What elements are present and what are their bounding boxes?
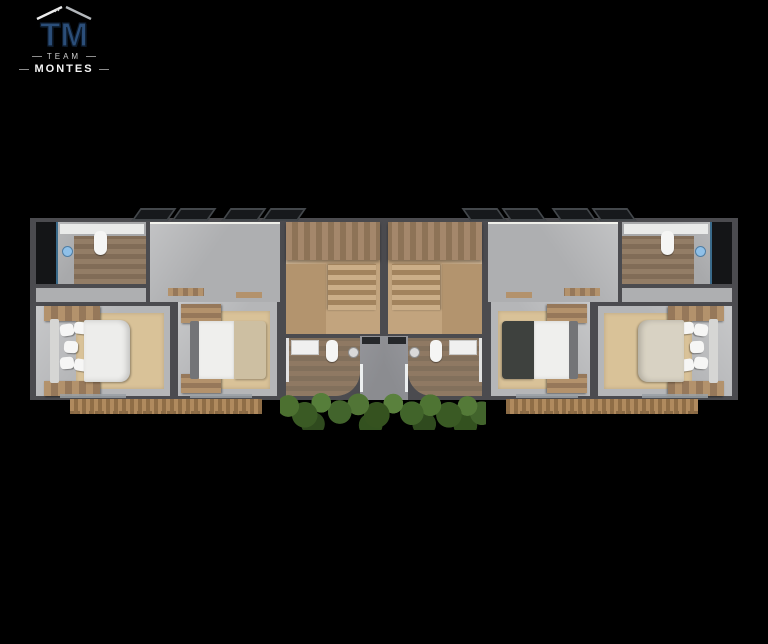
skylight-window [501,208,546,221]
wood-panel-wall [286,222,380,260]
headboard [190,321,199,379]
wood-console [506,292,532,298]
duvet [84,320,130,382]
skylight-window [171,208,216,221]
pillow [693,323,709,337]
ceiling-light-strip [150,222,280,224]
shower-enclosure [36,222,58,284]
throw-blanket [502,321,534,379]
headboard [569,321,578,379]
bed-sheet [531,321,569,379]
wood-console [236,292,262,298]
door-frame [360,364,363,392]
wood-deck [506,399,698,414]
bathroom-tile-floor [74,236,146,284]
sink-icon [291,340,319,355]
wood-deck [70,399,262,414]
logo-name-row: MONTES [8,63,120,75]
skylight-window [221,208,266,221]
dash-left [32,56,42,57]
bathroom-center [408,338,482,396]
shower-head-icon [695,246,706,257]
sliding-glass-door [190,394,252,398]
bathroom-wall [479,338,482,382]
toilet-icon [94,231,107,255]
duvet [638,320,684,382]
unit-right [384,218,738,400]
sliding-glass-door [642,394,708,398]
logo-monogram: TM [8,20,120,50]
logo-team-row: TEAM [8,52,120,61]
skylight-window [461,208,506,221]
logo-name-text: MONTES [34,63,93,75]
toilet-icon [326,340,338,362]
shower-enclosure [710,222,732,284]
door-mat [362,337,380,344]
bathroom-wall [286,338,289,382]
team-montes-logo: TM TEAM MONTES [8,4,120,75]
wood-console [564,288,600,296]
pillow [64,341,79,354]
shrubs [280,390,486,430]
partition-wall [590,302,598,400]
bathroom-corner [622,222,732,284]
pillow [59,323,75,337]
sliding-glass-door [60,394,126,398]
skylight-window [131,208,176,221]
skylight-window [261,208,306,221]
bathroom-corner [36,222,146,284]
bed-sheet [199,321,237,379]
partition-wall [170,302,178,400]
shower-head-icon [62,246,73,257]
skylight-window [551,208,596,221]
pillow [694,356,709,369]
bathroom-tile-floor [622,236,694,284]
corridor [36,288,146,302]
skylight-window [591,208,636,221]
corridor [622,288,732,302]
toilet-icon [430,340,442,362]
stair-landing [286,264,326,334]
bedroom-outer [36,306,170,396]
stair-wall [482,222,488,396]
door-mat [388,337,406,344]
staircase [392,264,440,310]
toilet-icon [661,231,674,255]
headboard [50,319,59,383]
wood-panel-wall [388,222,482,260]
staircase [328,264,376,310]
upper-landing [150,222,280,302]
floor-plan [28,204,740,432]
ceiling-light-strip [488,222,618,224]
shower-head-icon [409,347,420,358]
dash-right [99,69,109,70]
bedroom-outer [598,306,732,396]
bathroom-center [286,338,360,396]
sink-icon [449,340,477,355]
stair-hall [286,222,380,334]
throw-blanket [234,321,266,379]
double-bed [638,319,718,383]
double-bed [50,319,130,383]
headboard [709,319,718,383]
bedroom-inner [178,302,277,396]
logo-team-text: TEAM [47,52,81,61]
dash-left [19,69,29,70]
bedroom-inner [491,302,590,396]
stair-landing [442,264,482,334]
stair-hall [388,222,482,334]
double-bed [502,321,578,379]
pillow [690,341,705,354]
dash-right [86,56,96,57]
double-bed [190,321,266,379]
wood-console [168,288,204,296]
sliding-glass-door [516,394,578,398]
door-frame [405,364,408,392]
unit-left [30,218,384,400]
upper-landing [488,222,618,302]
shower-head-icon [348,347,359,358]
pillow [60,356,75,369]
